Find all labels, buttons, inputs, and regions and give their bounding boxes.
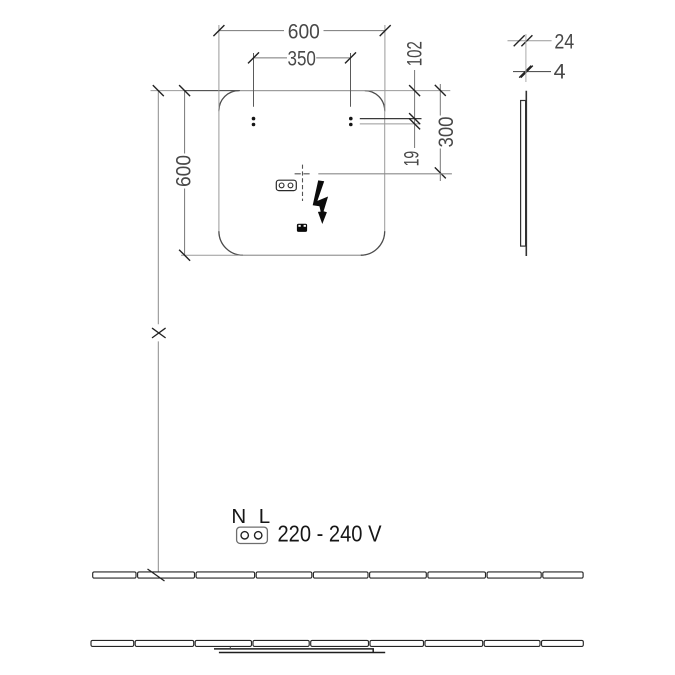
svg-text:L: L bbox=[259, 505, 270, 528]
svg-text:600: 600 bbox=[171, 155, 195, 187]
svg-text:300: 300 bbox=[434, 116, 458, 147]
svg-text:350: 350 bbox=[288, 46, 316, 70]
svg-text:N: N bbox=[231, 505, 246, 528]
svg-text:102: 102 bbox=[402, 41, 426, 66]
svg-text:4: 4 bbox=[554, 59, 566, 83]
svg-text:600: 600 bbox=[288, 20, 320, 44]
svg-text:220 - 240 V: 220 - 240 V bbox=[278, 521, 382, 547]
svg-text:24: 24 bbox=[554, 30, 574, 54]
svg-text:19: 19 bbox=[399, 151, 423, 167]
